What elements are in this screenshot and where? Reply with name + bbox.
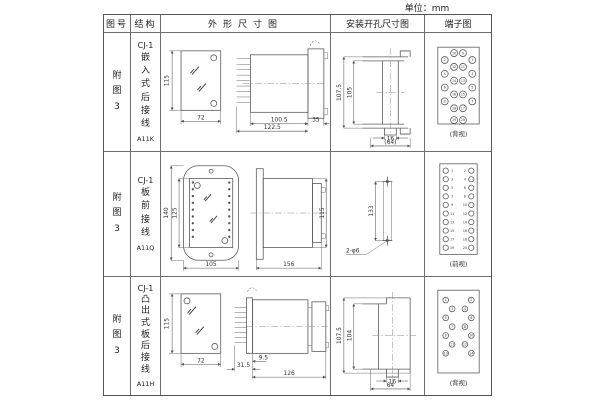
type-code: A11Q: [137, 244, 155, 252]
dim-label-front-width: 72: [197, 357, 205, 364]
dim-label-total: 126: [283, 370, 295, 377]
terminal-number: 4: [443, 72, 445, 76]
hatch-mark: [197, 84, 205, 92]
terminal-number: 20: [460, 118, 464, 122]
terminal-number: 10: [462, 203, 466, 207]
terminal-drawing-row2: 1 3 5 7 9 11 13 15 17 19 2 4 6 8 10 12 1: [425, 152, 491, 277]
front-view: 140 125 105: [164, 166, 238, 271]
structure-text: 凸 出 式 板 后 接 线: [141, 295, 150, 377]
terminal-number: 1: [451, 169, 453, 173]
view-label: (前视): [449, 259, 467, 268]
terminal-number: 14: [469, 351, 473, 355]
hatch-mark: [195, 326, 203, 334]
terminal-number: 8: [443, 100, 445, 104]
outline-drawing-row1: 115 72 100.5 35: [161, 33, 331, 152]
datasheet-page: 单位：mm 图号 结构 外形尺寸图 安装开孔尺寸图 端子图 附 图 3 CJ-1…: [0, 0, 600, 400]
terminal-number: 9: [461, 51, 463, 55]
terminal-svg-row2: 1 3 5 7 9 11 13 15 17 19 2 4 6 8 10 12 1: [426, 152, 491, 276]
dim-label-body-length: 100.5: [271, 117, 288, 124]
terminal-number: 15: [450, 229, 454, 233]
terminal-grid: 1 3 5 7 9 11 13 2 4 6 8 10 12 14: [442, 297, 473, 356]
dim-label-outer: 107.5: [336, 326, 343, 343]
terminal-number: 9: [444, 333, 446, 337]
terminal-number: 13: [460, 79, 464, 83]
pin-comb: [235, 307, 247, 342]
structure-row2: CJ-1 板 前 接 线 A11Q: [131, 152, 161, 277]
structure-row1: CJ-1 嵌 入 式 后 接 线 A11K: [131, 33, 161, 152]
hatch-mark: [190, 67, 198, 75]
terminal-number: 12: [462, 212, 466, 216]
side-view: 9.5 31.5 126: [227, 287, 329, 378]
terminal-number: 2: [470, 298, 472, 302]
mount-holes: [382, 177, 392, 246]
model-label: CJ-1: [138, 176, 154, 185]
outline-svg-row2: 140 125 105 156 115: [161, 152, 330, 276]
header-terminal: 端子图: [425, 15, 491, 33]
terminal-number: 20: [462, 246, 466, 250]
dim-label-plate: 9.5: [259, 354, 269, 361]
dim-label-front-height: 115: [164, 317, 171, 329]
model-label: CJ-1: [138, 41, 154, 50]
structure-text: 板 前 接 线: [141, 187, 150, 239]
terminal-number: 14: [462, 220, 466, 224]
mount-drawing-row3: 107.5 104 16 64: [331, 277, 425, 395]
terminal-number: 10: [451, 51, 455, 55]
terminal-number: 11: [450, 212, 454, 216]
fig-no-row2: 附 图 3: [104, 152, 131, 277]
outline-svg-row1: 115 72 100.5 35: [161, 33, 330, 151]
terminal-number: 2: [443, 58, 445, 62]
terminal-number: 3: [451, 178, 453, 182]
dim-label-outer-height: 140: [164, 207, 170, 218]
side-view: 100.5 35 122.5: [237, 41, 330, 133]
terminal-number: 7: [451, 324, 453, 328]
dim-label-height: 115: [320, 207, 326, 218]
type-code: A11H: [137, 380, 155, 388]
terminal-grid: 2 4 6 8 10 12 14 16 18 9 11 13 15 17 1 3: [441, 50, 475, 124]
front-view: 115 72: [164, 293, 221, 366]
dim-label-length: 156: [283, 262, 294, 268]
front-view: 115 72: [164, 51, 221, 124]
terminal-number: 8: [463, 324, 465, 328]
terminal-drawing-row3: 1 3 5 7 9 11 13 2 4 6 8 10 12 14 (背视): [425, 277, 491, 395]
terminal-svg-row1: 2 4 6 8 10 12 14 16 18 9 11 13 15 17 1 3: [426, 33, 491, 151]
terminal-number: 3: [451, 307, 453, 311]
dimension-table: 图号 结构 外形尺寸图 安装开孔尺寸图 端子图 附 图 3 CJ-1 嵌 入 式…: [103, 14, 492, 396]
terminal-number: 13: [443, 351, 447, 355]
dim-label-width: 64: [387, 381, 395, 388]
terminal-number: 4: [463, 307, 465, 311]
fig-no-row3: 附 图 3: [104, 277, 131, 395]
dim-label-inner: 105: [346, 87, 353, 99]
unit-label: 单位：mm: [372, 1, 482, 14]
outline-drawing-row3: 115 72 9.5: [161, 277, 331, 395]
dim-label-front-width: 72: [197, 114, 205, 121]
terminal-number: 17: [460, 106, 464, 110]
dim-label-holes: 2-φ6: [346, 248, 360, 254]
terminal-number: 18: [462, 237, 466, 241]
header-fig-no: 图号: [104, 15, 131, 33]
lifting-hook: [247, 287, 256, 291]
terminal-number: 19: [450, 246, 454, 250]
hatch-mark: [204, 194, 211, 201]
terminal-number: 1: [471, 58, 473, 62]
fig-no-row1: 附 图 3: [104, 33, 131, 152]
terminal-number: 7: [471, 100, 473, 104]
view-label: (背视): [449, 129, 467, 138]
hatch-mark: [187, 306, 195, 314]
terminal-number: 18: [451, 106, 455, 110]
terminal-number: 12: [451, 65, 455, 69]
terminal-number: 6: [443, 86, 445, 90]
terminal-number: 11: [450, 342, 454, 346]
terminal-number: 19: [451, 118, 455, 122]
mount-svg-row1: 107.5 105 16 (64): [331, 33, 424, 151]
dim-label-pins: 31.5: [237, 362, 250, 369]
terminal-number: 13: [450, 220, 454, 224]
terminal-number: 17: [450, 237, 454, 241]
dim-label-front-height: 115: [164, 75, 171, 87]
terminal-svg-row3: 1 3 5 7 9 11 13 2 4 6 8 10 12 14 (背视): [426, 278, 491, 395]
terminal-number: 12: [462, 342, 466, 346]
terminal-number: 16: [451, 93, 455, 97]
terminal-number: 5: [444, 315, 446, 319]
header-mount-dims: 安装开孔尺寸图: [331, 15, 425, 33]
view-label: (背视): [449, 377, 467, 386]
terminal-number: 11: [460, 65, 464, 69]
structure-row3: CJ-1 凸 出 式 板 后 接 线 A11H: [131, 277, 161, 395]
dim-label-inner-height: 125: [172, 207, 178, 218]
terminal-number: 10: [469, 333, 473, 337]
hatch-mark: [210, 216, 217, 223]
terminal-number: 1: [444, 298, 446, 302]
terminal-number: 4: [463, 178, 465, 182]
header-structure: 结构: [131, 15, 161, 33]
dim-label-flange: 35: [312, 117, 320, 124]
terminal-number: 16: [462, 229, 466, 233]
dim-label-width: 105: [205, 262, 216, 268]
pin-comb: [237, 59, 251, 103]
terminal-number: 5: [471, 86, 473, 90]
mount-svg-row3: 107.5 104 16 64: [331, 278, 424, 395]
mount-svg-row2: 133 2-φ6: [331, 152, 424, 276]
terminal-number: 7: [451, 195, 453, 199]
dim-label-total-length: 122.5: [264, 124, 281, 131]
side-view: 156 115: [250, 169, 327, 270]
dim-label-outer: 107.5: [336, 84, 343, 101]
outline-drawing-row2: 140 125 105 156 115: [161, 152, 331, 277]
header-outline-dims: 外形尺寸图: [161, 15, 331, 33]
terminal-number: 8: [463, 195, 465, 199]
terminal-number: 9: [451, 203, 453, 207]
mount-drawing-row1: 107.5 105 16 (64): [331, 33, 425, 152]
structure-text: 嵌 入 式 后 接 线: [141, 52, 150, 130]
terminal-drawing-row1: 2 4 6 8 10 12 14 16 18 9 11 13 15 17 1 3: [425, 33, 491, 152]
terminal-number: 6: [470, 315, 472, 319]
terminal-number: 14: [451, 79, 455, 83]
terminal-number: 5: [451, 186, 453, 190]
mount-drawing-row2: 133 2-φ6: [331, 152, 425, 277]
terminal-grid: 1 3 5 7 9 11 13 15 17 19 2 4 6 8 10 12 1: [443, 168, 474, 250]
lifting-hook: [310, 41, 320, 46]
dim-label-span: 133: [369, 205, 375, 216]
terminal-number: 6: [463, 186, 465, 190]
dim-label-width: (64): [384, 139, 396, 146]
terminal-number: 3: [471, 72, 473, 76]
outline-svg-row3: 115 72 9.5: [161, 278, 330, 395]
dim-label-inner: 104: [346, 329, 353, 341]
model-label: CJ-1: [138, 284, 154, 293]
terminal-number: 2: [463, 169, 465, 173]
type-code: A11K: [137, 135, 154, 143]
terminal-number: 15: [460, 93, 464, 97]
